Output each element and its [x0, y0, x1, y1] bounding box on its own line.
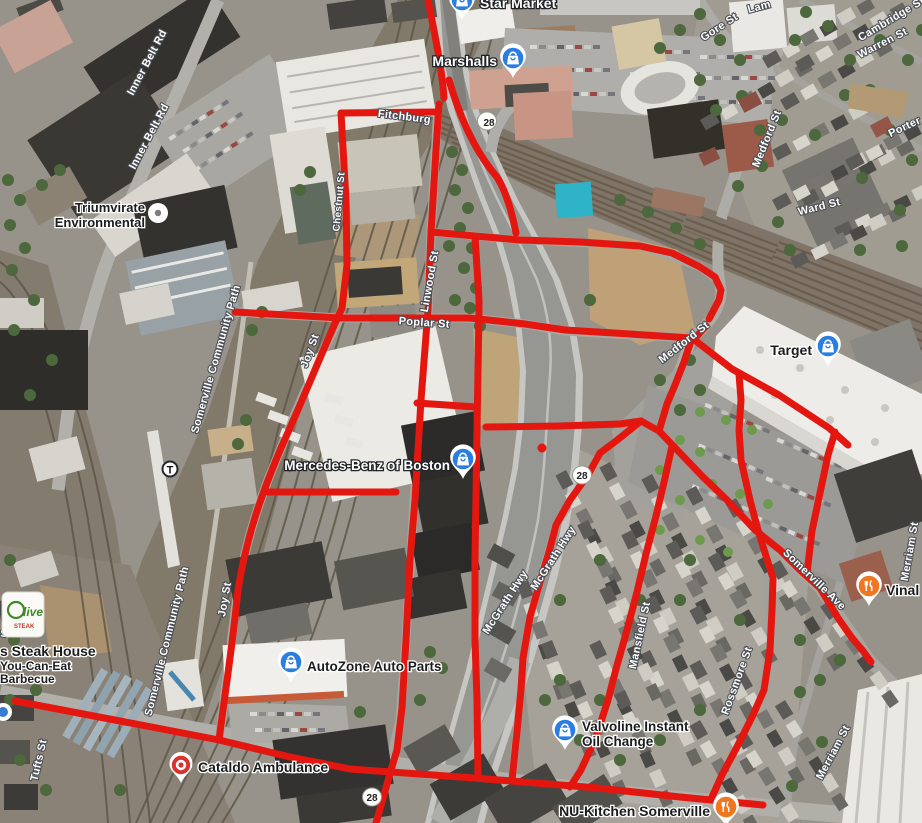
- svg-text:Star Market: Star Market: [480, 0, 557, 11]
- svg-text:T: T: [167, 465, 174, 477]
- svg-text:Vinal: Vinal: [886, 582, 919, 598]
- svg-text:Environmental: Environmental: [55, 215, 145, 230]
- svg-text:AutoZone Auto Parts: AutoZone Auto Parts: [307, 659, 442, 674]
- svg-text:Valvoline Instant: Valvoline Instant: [582, 719, 689, 734]
- svg-text:NU-Kitchen Somerville: NU-Kitchen Somerville: [559, 803, 710, 819]
- svg-text:Mercedes-Benz of Boston: Mercedes-Benz of Boston: [284, 458, 450, 473]
- svg-text:Marshalls: Marshalls: [432, 53, 497, 69]
- svg-text:s Steak House: s Steak House: [0, 643, 96, 659]
- svg-text:Oil Change: Oil Change: [582, 734, 654, 749]
- svg-text:live: live: [23, 605, 43, 619]
- svg-text:28: 28: [576, 471, 588, 482]
- svg-text:Triumvirate: Triumvirate: [75, 200, 145, 215]
- svg-text:Barbecue: Barbecue: [0, 672, 55, 686]
- svg-text:28: 28: [366, 793, 378, 804]
- svg-text:Target: Target: [770, 342, 812, 358]
- svg-text:Cataldo Ambulance: Cataldo Ambulance: [198, 759, 328, 775]
- svg-text:STEAK: STEAK: [14, 624, 35, 630]
- svg-text:You-Can-Eat: You-Can-Eat: [0, 659, 71, 673]
- svg-text:28: 28: [483, 118, 495, 129]
